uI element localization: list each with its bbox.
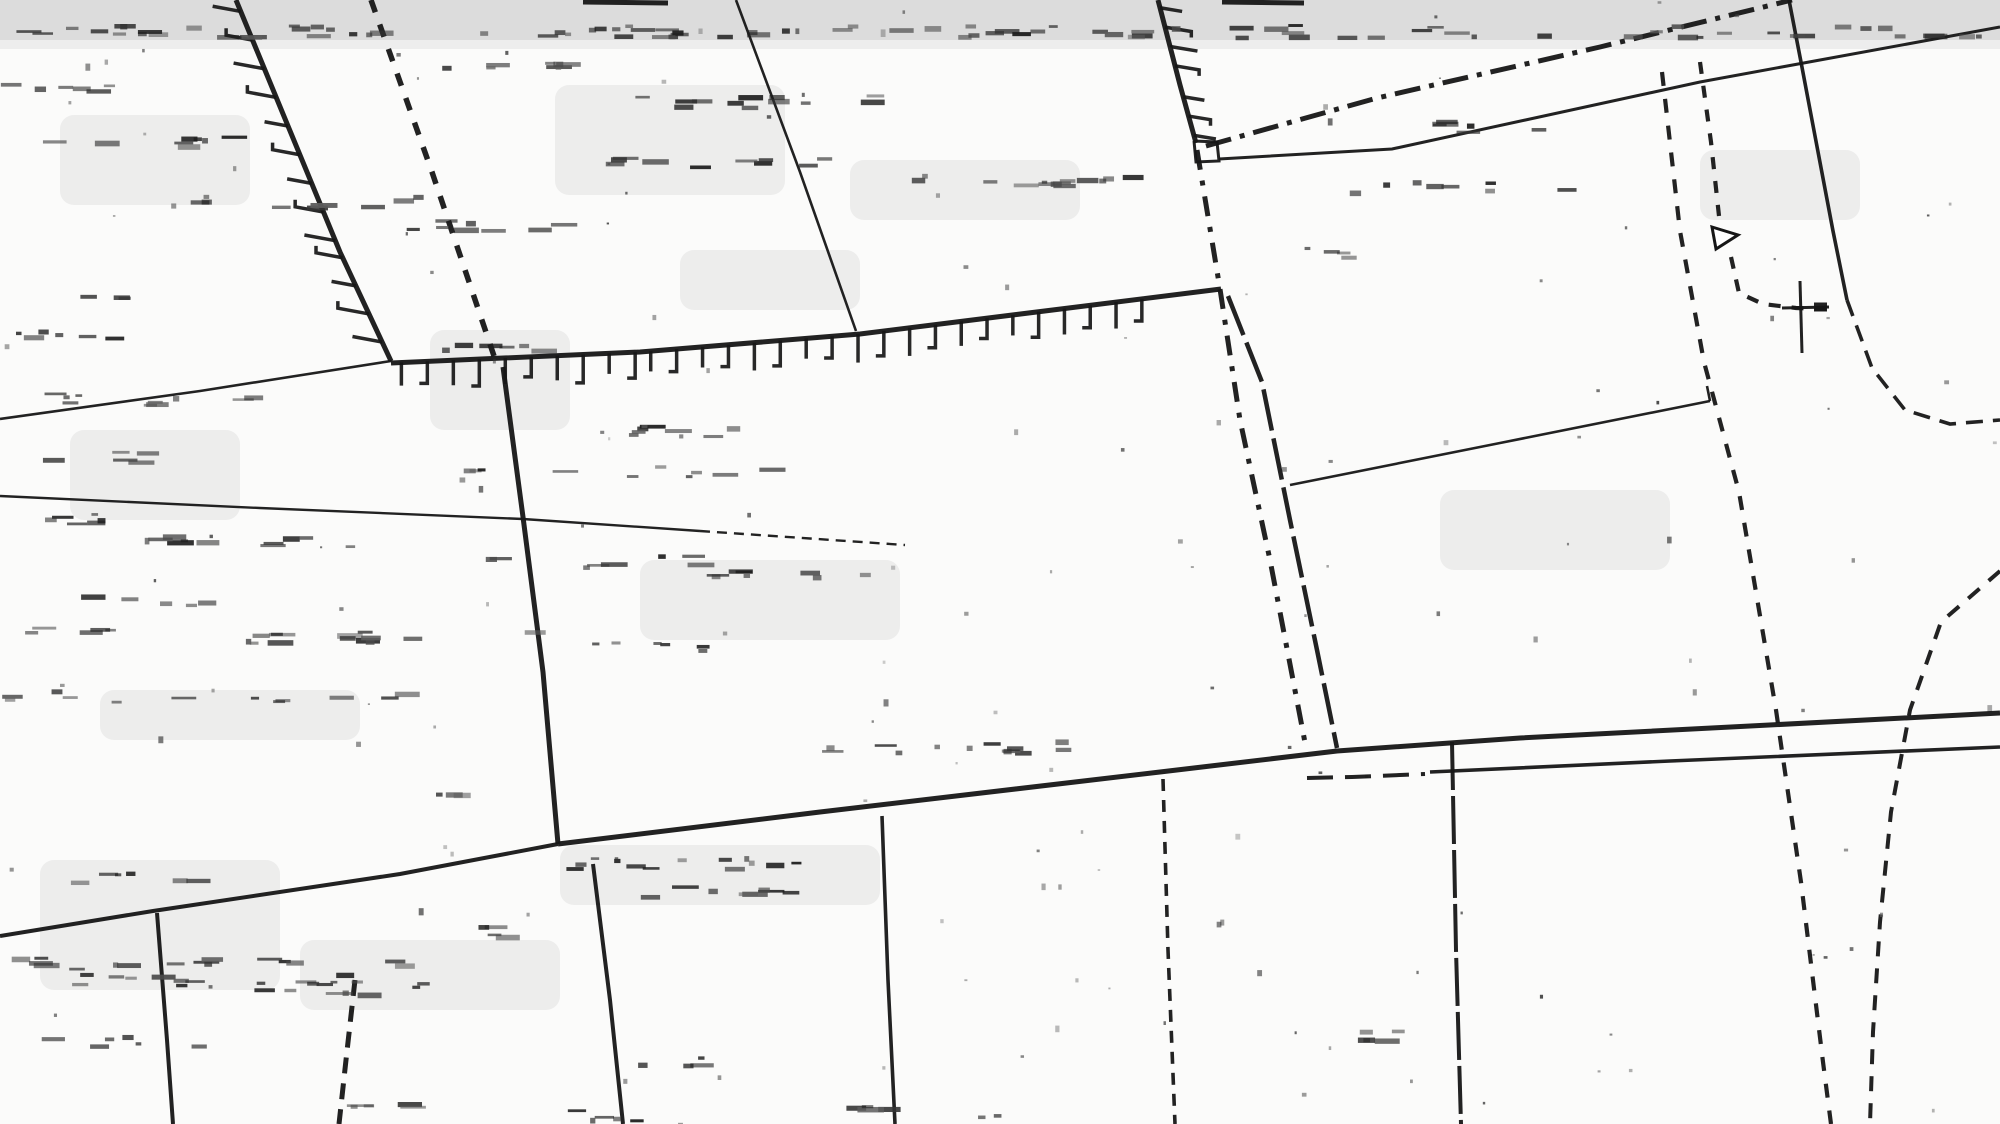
track-line-east-endtick <box>1707 386 1710 401</box>
field-division-c <box>1163 779 1175 1124</box>
scan-gray-band-top-fade <box>0 40 2000 49</box>
track-line-east <box>1290 401 1710 485</box>
survey-cross-v <box>1800 281 1802 353</box>
field-line-mid-east <box>700 531 905 545</box>
map-scan-viewport <box>0 0 2000 1124</box>
roadside-line-south <box>1452 742 1461 1124</box>
scan-artifact-top-a <box>583 2 668 3</box>
paper-smudges <box>40 85 1860 1010</box>
dashed-path-east-b-lower <box>1731 257 1831 309</box>
right-edge-companion <box>1228 296 1337 748</box>
cadastral-map-scan <box>0 0 2000 1124</box>
dashed-path-east-a <box>1662 72 1831 1124</box>
parcel-bottom-edge <box>558 713 2000 844</box>
road-curve-east-dashed <box>1847 300 2000 424</box>
bottom-edge-companion-solid <box>1430 747 2000 772</box>
road-curve-southeast <box>1870 571 2000 1124</box>
scan-gray-band-top-fade <box>0 40 2000 49</box>
survey-arrow <box>1712 227 1738 249</box>
dashed-boundary-west <box>371 0 494 356</box>
field-division-b <box>882 816 895 1124</box>
parcel-left-edge <box>503 367 558 844</box>
parcel-right-edge-dashdot <box>1197 150 1306 748</box>
west-field-line <box>0 361 391 419</box>
scan-artifact-top-b <box>1222 2 1304 3</box>
